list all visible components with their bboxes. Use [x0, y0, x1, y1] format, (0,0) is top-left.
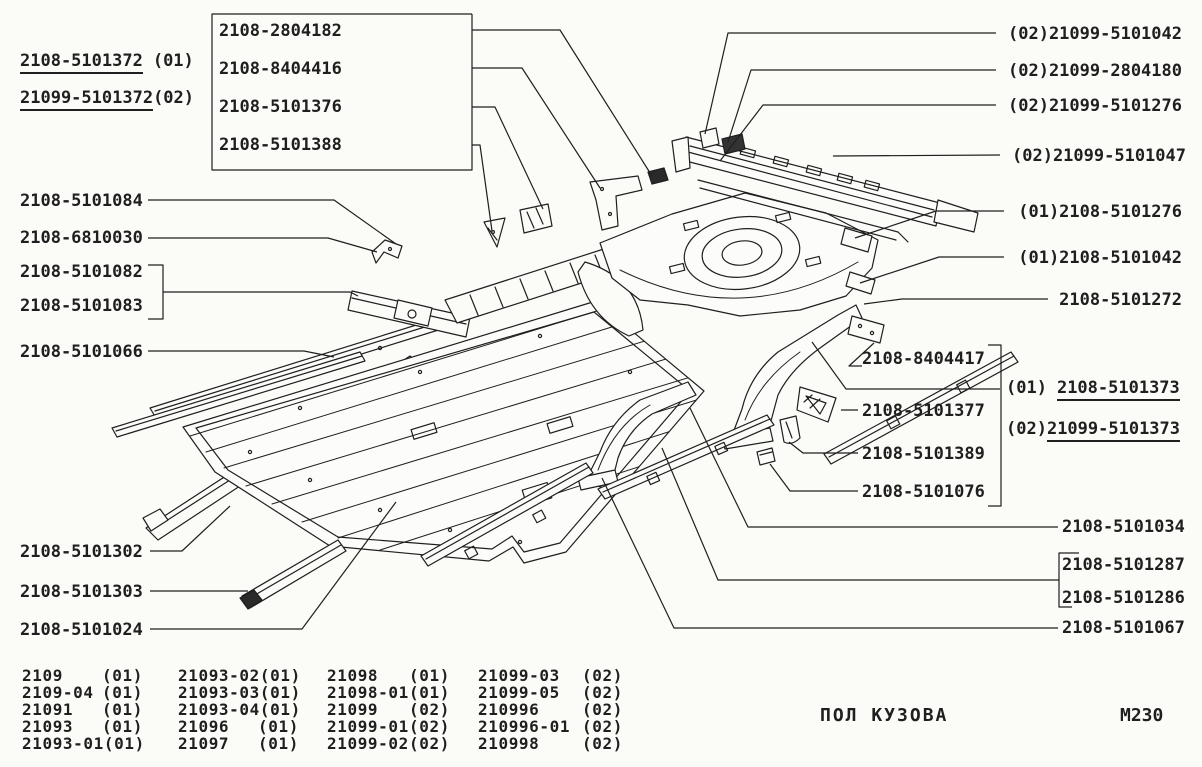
model-code: 210996 [478, 701, 582, 718]
part-label-5101076: 2108-5101076 [862, 483, 985, 502]
model-code: 21093-02 [178, 667, 260, 684]
assembly-callout-front-01: 2108-5101372(01) [20, 52, 194, 71]
part-label-5101067: 2108-5101067 [1062, 619, 1185, 638]
part-label-5101083: 2108-5101083 [20, 297, 143, 316]
model-code: 21097 [178, 735, 258, 752]
applicability-row: 21093-01(01) [22, 735, 145, 752]
model-code: 21093 [22, 718, 102, 735]
applicability-row: 21099-05(02) [478, 684, 623, 701]
model-code: 210996-01 [478, 718, 582, 735]
applicability-row: 210996(02) [478, 701, 623, 718]
part-label-5101303: 2108-5101303 [20, 583, 143, 602]
part-label-2804182: 2108-2804182 [219, 22, 342, 41]
model-code: 21093-01 [22, 735, 104, 752]
applicability-row: 21098(01) [327, 667, 450, 684]
part-number: 21099-5101372 [20, 88, 153, 111]
part-label-8404417: 2108-8404417 [862, 350, 985, 369]
leader-8404416 [472, 68, 600, 188]
trunk-floor-drawing [600, 193, 878, 316]
part-label-21099-5101047: (02)21099-5101047 [1012, 147, 1186, 166]
applicability-row: 21098-01(01) [327, 684, 450, 701]
applicability-row: 21093-04(01) [178, 701, 301, 718]
model-code: 21099-01 [327, 718, 409, 735]
variant-code: (02) [409, 734, 450, 753]
leader-5101076 [770, 464, 858, 491]
applicability-row: 2109-04(01) [22, 684, 145, 701]
model-code: 2109-04 [22, 684, 102, 701]
model-code: 21099 [327, 701, 409, 718]
applicability-row: 21093-03(01) [178, 684, 301, 701]
part-label-5101389: 2108-5101389 [862, 445, 985, 464]
assembly-callout-rear-01: (01)2108-5101373 [1006, 379, 1180, 398]
variant-code: (01) [153, 51, 194, 71]
leader-5101376 [472, 107, 543, 209]
part-label-5101272: 2108-5101272 [1059, 291, 1182, 310]
applicability-row: 21096(01) [178, 718, 301, 735]
leader-2804182 [472, 30, 652, 176]
applicability-row: 21093-02(01) [178, 667, 301, 684]
part-label-21099-5101276: (02)21099-5101276 [1008, 97, 1182, 116]
part-label-5101302: 2108-5101302 [20, 543, 143, 562]
leader-5101067 [602, 478, 1058, 628]
part-label-5101287: 2108-5101287 [1062, 556, 1185, 575]
parts-catalog-page: 2108-5101372(01) 21099-5101372(02) 2108-… [0, 0, 1202, 767]
variant-code: (01) [104, 734, 145, 753]
model-code: 2109 [22, 667, 102, 684]
leader-5101066 [148, 351, 334, 357]
applicability-column-4: 21099-03(02)21099-05(02)210996(02)210996… [478, 667, 623, 752]
part-label-2108-5101042: (01)2108-5101042 [1018, 249, 1182, 268]
model-code: 21093-04 [178, 701, 260, 718]
applicability-row: 21091(01) [22, 701, 145, 718]
variant-code: (02) [153, 88, 194, 108]
part-label-5101084: 2108-5101084 [20, 192, 143, 211]
assembly-callout-front-02: 21099-5101372(02) [20, 89, 194, 108]
applicability-row: 210998(02) [478, 735, 623, 752]
part-number: 2108-5101372 [20, 51, 143, 74]
leader-6810030 [148, 238, 377, 252]
applicability-column-2: 21093-02(01)21093-03(01)21093-04(01)2109… [178, 667, 301, 752]
applicability-row: 21099(02) [327, 701, 450, 718]
part-label-5101024: 2108-5101024 [20, 621, 143, 640]
part-number: 2108-5101373 [1057, 378, 1180, 401]
leader-21099-5101047 [833, 155, 1000, 156]
model-code: 21098 [327, 667, 409, 684]
part-label-5101286: 2108-5101286 [1062, 589, 1185, 608]
applicability-row: 210996-01(02) [478, 718, 623, 735]
part-label-6810030: 2108-6810030 [20, 229, 143, 248]
assembly-callout-rear-02: (02)21099-5101373 [1006, 420, 1180, 439]
leader-21099-2804180 [728, 70, 996, 142]
sheet-code: M230 [1120, 705, 1163, 726]
part-label-5101388: 2108-5101388 [219, 136, 342, 155]
applicability-row: 21099-02(02) [327, 735, 450, 752]
model-code: 21096 [178, 718, 258, 735]
part-label-5101066: 2108-5101066 [20, 343, 143, 362]
part-label-21099-2804180: (02)21099-2804180 [1008, 62, 1182, 81]
leader-5101082-83 [163, 292, 358, 296]
applicability-row: 21099-03(02) [478, 667, 623, 684]
leader-5101287-86 [662, 448, 1059, 580]
applicability-row: 2109(01) [22, 667, 145, 684]
leader-21099-5101042 [705, 33, 996, 134]
page-title: ПОЛ КУЗОВА [820, 705, 948, 726]
leader-5101272 [864, 299, 1048, 304]
model-code: 21099-05 [478, 684, 582, 701]
model-code: 210998 [478, 735, 582, 752]
model-code: 21091 [22, 701, 102, 718]
applicability-row: 21099-01(02) [327, 718, 450, 735]
part-label-5101377: 2108-5101377 [862, 402, 985, 421]
variant-code: (01) [258, 734, 299, 753]
applicability-row: 21093(01) [22, 718, 145, 735]
part-label-21099-5101042: (02)21099-5101042 [1008, 25, 1182, 44]
model-code: 21099-03 [478, 667, 582, 684]
leader-5101388 [472, 145, 492, 231]
variant-code: (02) [1006, 419, 1047, 439]
part-label-5101034: 2108-5101034 [1062, 518, 1185, 537]
applicability-column-1: 2109(01)2109-04(01)21091(01)21093(01)210… [22, 667, 145, 752]
part-number: 21099-5101373 [1047, 419, 1180, 442]
model-code: 21099-02 [327, 735, 409, 752]
leader-21099-5101276 [720, 105, 996, 161]
part-label-8404416: 2108-8404416 [219, 60, 342, 79]
applicability-row: 21097(01) [178, 735, 301, 752]
variant-code: (01) [1006, 378, 1047, 398]
part-label-5101376: 2108-5101376 [219, 98, 342, 117]
bracket-5101082-83 [148, 265, 163, 319]
part-label-5101082: 2108-5101082 [20, 263, 143, 282]
variant-code: (02) [582, 734, 623, 753]
model-code: 21093-03 [178, 684, 260, 701]
part-label-2108-5101276: (01)2108-5101276 [1018, 203, 1182, 222]
leader-2108-5101042 [860, 257, 1004, 283]
model-code: 21098-01 [327, 684, 409, 701]
applicability-column-3: 21098(01)21098-01(01)21099(02)21099-01(0… [327, 667, 450, 752]
